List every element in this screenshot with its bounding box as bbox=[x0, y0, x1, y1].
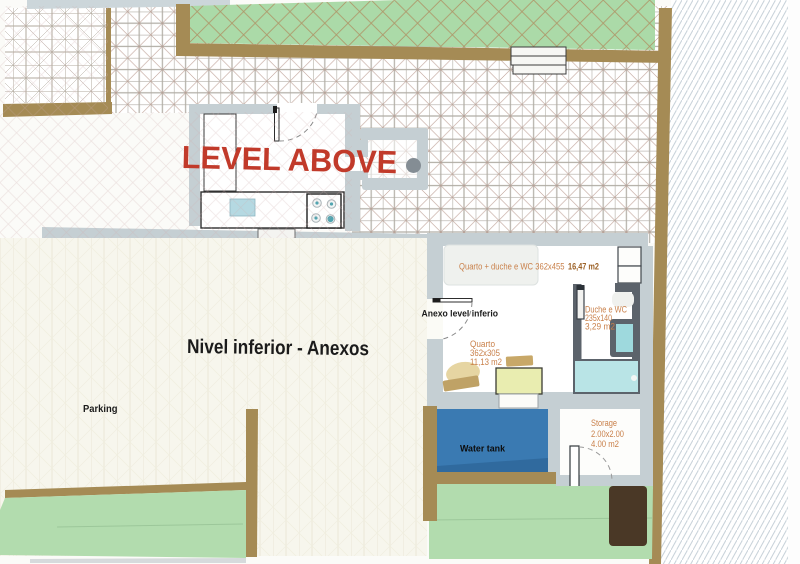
svg-text:4.00 m2: 4.00 m2 bbox=[591, 439, 619, 450]
svg-text:11,13 m2: 11,13 m2 bbox=[470, 357, 502, 368]
svg-text:Quarto + duche e WC 362x455: Quarto + duche e WC 362x455 bbox=[459, 262, 565, 273]
svg-text:3,29 m2: 3,29 m2 bbox=[585, 322, 615, 333]
svg-text:Storage: Storage bbox=[591, 418, 617, 429]
svg-text:Nivel inferior - Anexos: Nivel inferior - Anexos bbox=[187, 336, 369, 360]
svg-text:Anexo level inferio: Anexo level inferio bbox=[422, 309, 499, 319]
svg-text:LEVEL ABOVE: LEVEL ABOVE bbox=[181, 139, 397, 180]
svg-text:16,47 m2: 16,47 m2 bbox=[568, 262, 599, 273]
svg-text:Parking: Parking bbox=[83, 403, 118, 415]
svg-text:Water tank: Water tank bbox=[460, 444, 506, 455]
